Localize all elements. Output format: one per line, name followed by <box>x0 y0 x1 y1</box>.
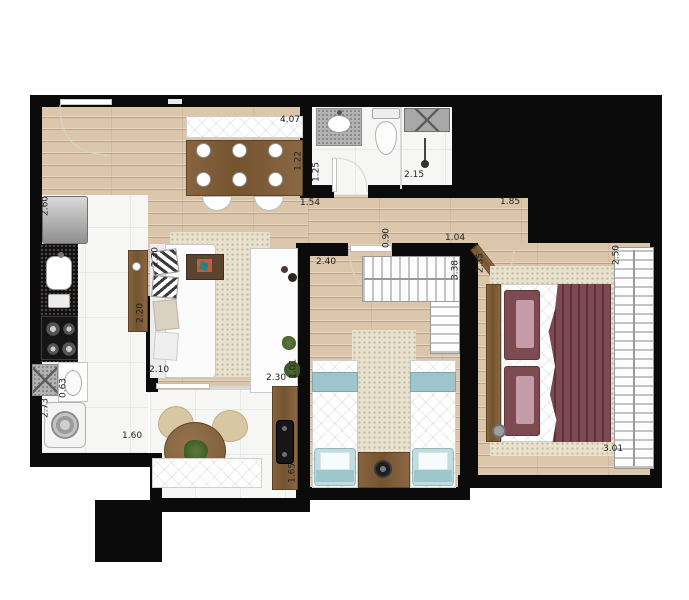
bed-armchair-left-seat <box>320 452 350 470</box>
toilet-tank <box>372 108 400 119</box>
dim-bedroom1-entry: 1.04 <box>445 234 465 243</box>
dim-living-sofa-side: 2.30 <box>152 247 161 267</box>
wall-bedroom2-bottom <box>300 487 470 500</box>
place-setting <box>196 172 211 187</box>
place-setting <box>232 143 247 158</box>
dim-bedroom1-side: 2.35 <box>477 253 486 273</box>
bar-cup <box>132 262 141 271</box>
window-mark <box>168 99 182 104</box>
vanity-sink <box>327 115 351 133</box>
shower-head <box>421 160 429 168</box>
dim-living-rack-side: 1.01 <box>290 359 299 379</box>
coffee-maker <box>48 294 70 308</box>
sofa-pillow-striped <box>151 275 179 299</box>
master-pillow-accent <box>516 300 534 348</box>
dim-bedroom2-side: 3.38 <box>452 260 461 280</box>
dim-bathroom-entry-side: 1.25 <box>313 162 322 182</box>
floor-plan-canvas: 4.07 1.22 2.60 1.25 2.15 1.54 1.85 0.90 … <box>0 0 689 600</box>
place-setting <box>232 172 247 187</box>
dim-kitchen-sink-side: 0.63 <box>60 378 69 398</box>
dim-living-bottom: 2.10 <box>149 366 169 375</box>
bathroom-door-leaf <box>332 158 337 192</box>
grill-knob <box>282 452 287 457</box>
master-headboard <box>486 284 501 442</box>
wall-bedroom2-top-a <box>296 243 348 256</box>
twin-bed-right-blanket <box>410 372 456 392</box>
dim-bathroom-shower: 2.15 <box>404 171 424 180</box>
faucet <box>58 252 64 258</box>
wall-block-top-right <box>466 95 662 198</box>
twin-nightstand-lamp <box>374 460 392 478</box>
wall-balcony-bottom <box>150 498 310 512</box>
dim-balcony-counter-top: 2.30 <box>266 374 286 383</box>
wall-block-top-right-step <box>528 198 662 243</box>
closet-rod <box>364 278 458 280</box>
bed-armchair-right-seat <box>418 452 448 470</box>
place-setting <box>268 172 283 187</box>
wall-bathroom-bottom-a <box>300 185 334 198</box>
master-pillow-accent <box>516 376 534 424</box>
hall-floor <box>308 195 530 245</box>
cooktop <box>41 316 78 360</box>
dim-bedroom1-closet-side: 2.50 <box>613 245 622 265</box>
coffee-table-book-small <box>199 261 208 270</box>
decor-bowl <box>281 266 288 273</box>
vanity-faucet <box>337 110 342 115</box>
dim-bedroom2-top: 2.40 <box>316 258 336 267</box>
dim-balcony-counter-side: 1.65 <box>289 463 298 483</box>
dim-hall-passage: 0.90 <box>383 228 392 248</box>
kitchen-counter-sink <box>46 256 72 290</box>
entry-door-leaf <box>60 99 112 105</box>
dim-dining-top: 4.07 <box>280 116 300 125</box>
shower-divider <box>400 107 402 189</box>
washer-drum <box>51 411 79 439</box>
balcony-bench <box>152 458 262 488</box>
plant <box>282 336 296 350</box>
dim-bedroom1-bottom: 3.01 <box>603 445 623 454</box>
closet-rod <box>633 250 635 466</box>
shower-stem <box>424 138 426 162</box>
place-setting <box>196 143 211 158</box>
place-setting <box>268 143 283 158</box>
bed-armchair-right-front <box>414 470 452 482</box>
dim-kitchen-counter-side: 2.20 <box>137 303 146 323</box>
grill-knob <box>282 426 287 431</box>
wall-bedroom2-top-b <box>392 243 466 256</box>
wall-bathroom-right <box>452 95 466 198</box>
tank-basin-mark <box>33 365 57 395</box>
master-lamp <box>492 424 506 438</box>
tv <box>298 282 303 340</box>
shower-mat <box>404 108 450 132</box>
twin-bed-left-blanket <box>312 372 358 392</box>
bed-armchair-left-front <box>316 470 354 482</box>
laundry-tank <box>32 364 58 396</box>
decor-bowl <box>288 273 297 282</box>
wall-bathroom-bottom-b <box>368 185 466 198</box>
dim-kitchen-refrigerator-side: 2.60 <box>42 196 51 216</box>
dim-hall-bathroom: 1.54 <box>300 199 320 208</box>
balcony-sliding-door-a <box>156 383 210 389</box>
sofa-pillow-beige <box>152 299 179 331</box>
wall-kitchen-bottom <box>30 453 162 467</box>
sofa-pillow-white <box>153 331 179 361</box>
bedroom2-closet-side <box>430 301 460 354</box>
wall-bedroom1-bottom <box>458 475 662 488</box>
wall-bedroom1-left <box>460 243 478 487</box>
dim-dining-side: 1.22 <box>295 151 304 171</box>
dim-laundry-side: 2.73 <box>42 398 51 418</box>
dim-hall-right: 1.85 <box>500 198 520 207</box>
dim-kitchen-bottom: 1.60 <box>122 432 142 441</box>
shower-mat-mark <box>405 109 449 131</box>
